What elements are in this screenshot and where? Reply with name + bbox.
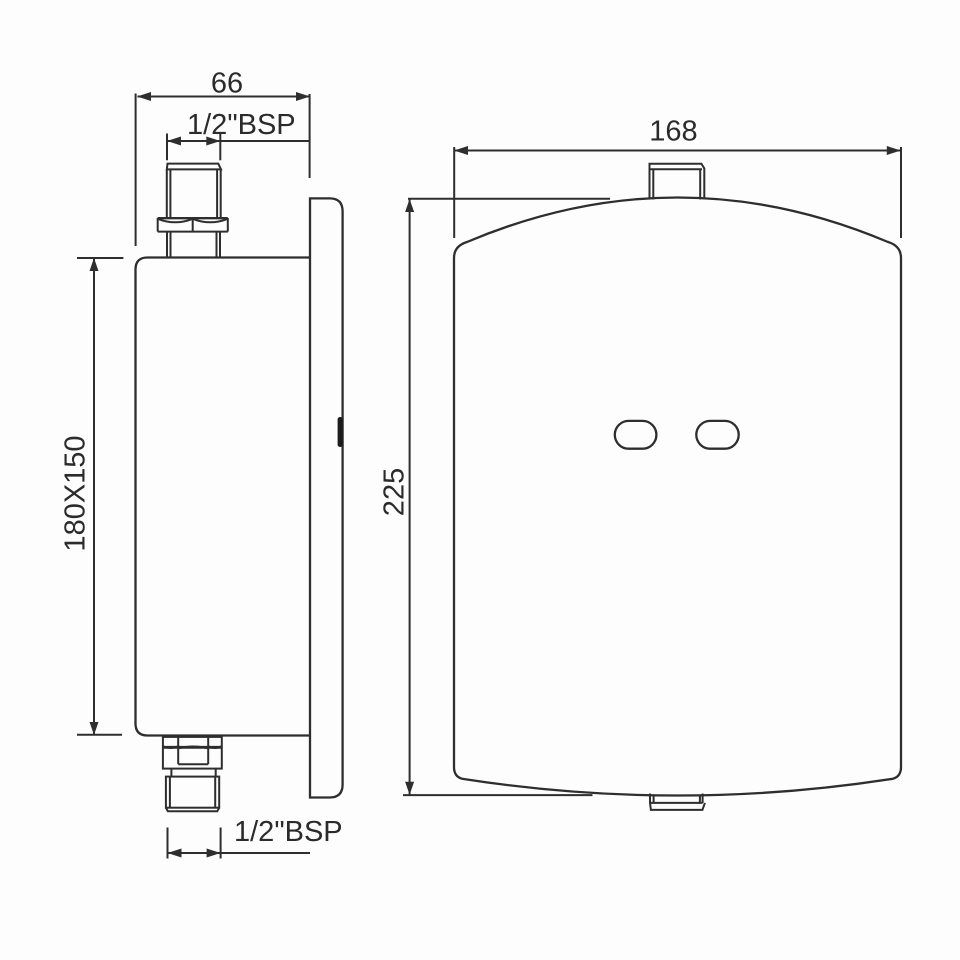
svg-text:180X150: 180X150	[60, 435, 92, 551]
svg-text:168: 168	[649, 116, 697, 148]
svg-text:1/2"BSP: 1/2"BSP	[187, 109, 296, 141]
svg-text:225: 225	[379, 468, 411, 516]
svg-text:1/2"BSP: 1/2"BSP	[234, 816, 343, 848]
svg-text:66: 66	[211, 68, 243, 100]
